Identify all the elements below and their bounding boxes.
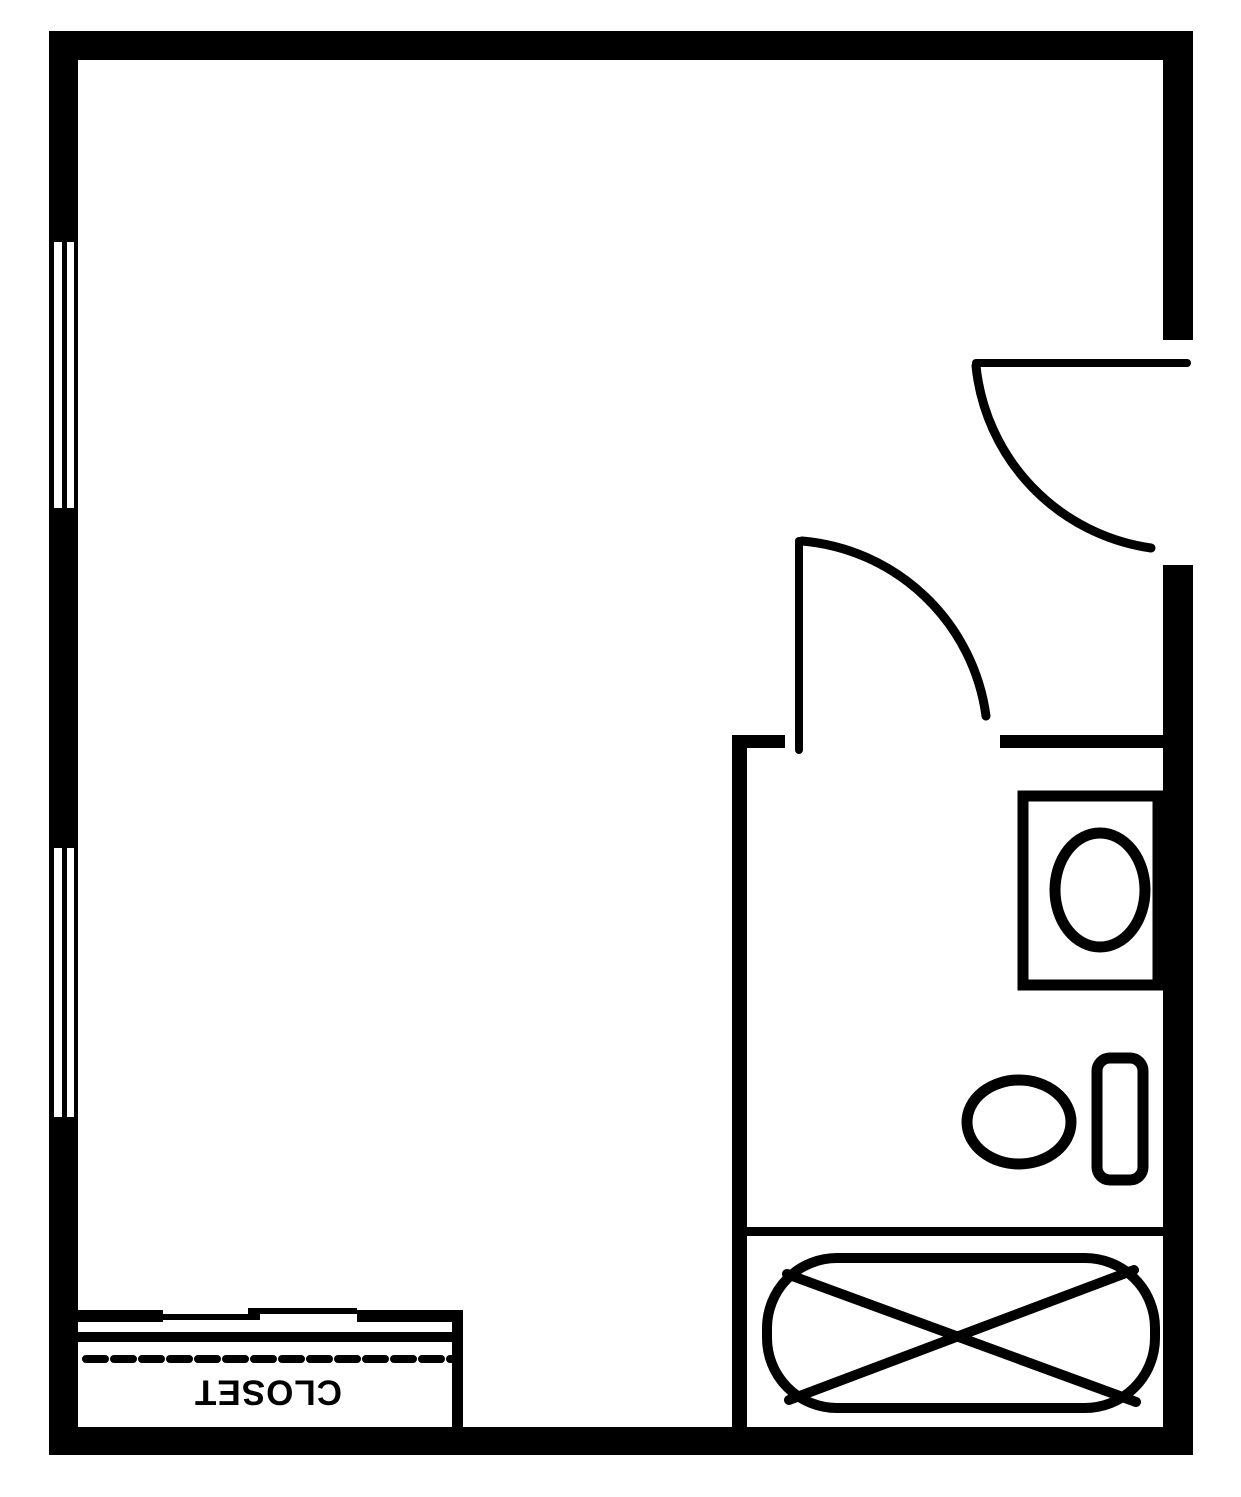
window-center-line <box>62 242 67 508</box>
toilet-bowl <box>967 1080 1071 1164</box>
vanity-basin <box>1055 833 1145 947</box>
toilet-tank <box>1097 1058 1143 1180</box>
toilet <box>967 1058 1143 1180</box>
window-inner-line <box>74 242 78 508</box>
window-inner-line <box>74 848 78 1117</box>
wall-left-segment-3 <box>49 1117 78 1455</box>
entry-door <box>976 363 1187 548</box>
wall-right-lower <box>1163 565 1193 1455</box>
vanity-sink <box>1023 796 1158 985</box>
wall-left-segment-1 <box>49 31 78 242</box>
window-center-line <box>62 848 67 1117</box>
closet-label: CLOSET <box>194 1373 342 1412</box>
closet-wall-right <box>452 1310 463 1427</box>
wall-right-upper <box>1163 31 1193 340</box>
closet-door-jamb-right <box>357 1310 463 1322</box>
bathroom-wall-top-stub <box>732 735 785 748</box>
closet-door-jamb-left <box>78 1310 163 1322</box>
bathroom-wall-top-right <box>1000 735 1163 748</box>
window-upper <box>49 242 78 508</box>
wall-top <box>49 31 1193 60</box>
bathroom-door <box>799 541 986 750</box>
bathroom-wall-left <box>732 735 747 1427</box>
wall-left-segment-2 <box>49 508 78 848</box>
floor-plan-canvas: CLOSET <box>0 0 1241 1497</box>
vanity-counter <box>1023 796 1158 985</box>
bathtub <box>767 1258 1155 1408</box>
closet-front-line <box>78 1332 452 1342</box>
closet-bypass-panel-front <box>255 1308 357 1314</box>
door-swing-arc <box>976 366 1151 548</box>
closet: CLOSET <box>78 1308 463 1427</box>
floor-plan: CLOSET <box>0 0 1241 1497</box>
door-swing-arc <box>802 541 986 716</box>
closet-bypass-panel-rear <box>160 1314 255 1320</box>
bathroom-divider-line <box>747 1227 1163 1236</box>
window-lower <box>49 848 78 1117</box>
window-outer-line <box>49 242 54 508</box>
wall-bottom <box>49 1427 1193 1455</box>
window-outer-line <box>49 848 54 1117</box>
